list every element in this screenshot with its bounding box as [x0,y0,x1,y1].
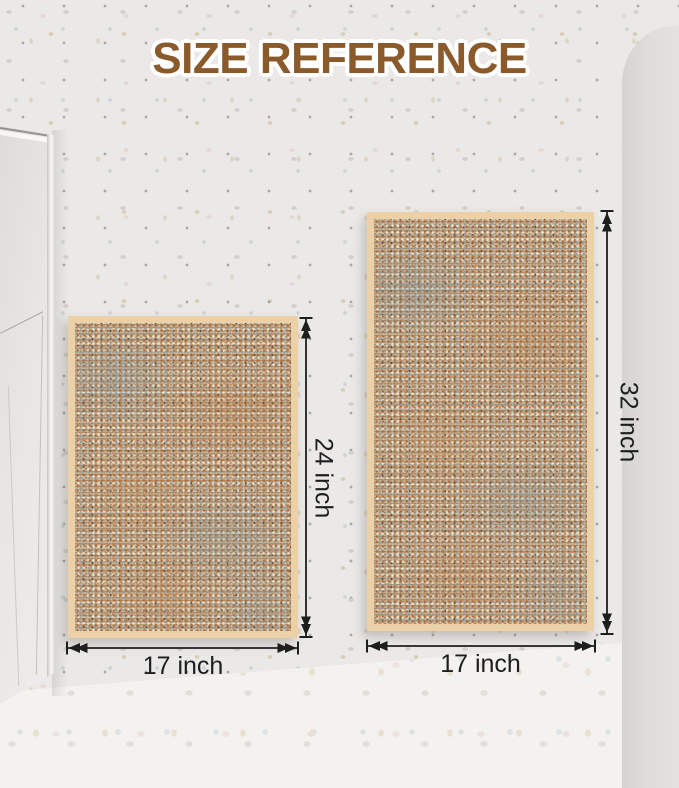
size-reference-scene: SIZE REFERENCE [0,0,679,788]
cabinet-seam [0,311,43,334]
cabinet-shadow [52,130,68,696]
cabinet-seam [36,315,43,675]
rug-small-height-label: 24 inch [309,438,338,519]
rug-small-color-patches [75,323,291,631]
rug-small [68,316,298,638]
rug-large-width-label: 17 inch [367,650,594,679]
rug-small-width-label: 17 inch [68,652,298,681]
rug-large-height-label: 32 inch [614,382,643,463]
page-title: SIZE REFERENCE [0,34,679,84]
rug-large-color-patches [374,219,587,624]
cabinet-edge-highlight [47,126,54,704]
rug-large-texture [374,219,587,624]
cabinet [0,126,54,704]
rug-large [367,212,594,631]
rug-small-texture [75,323,291,631]
cabinet-seam [8,386,19,686]
